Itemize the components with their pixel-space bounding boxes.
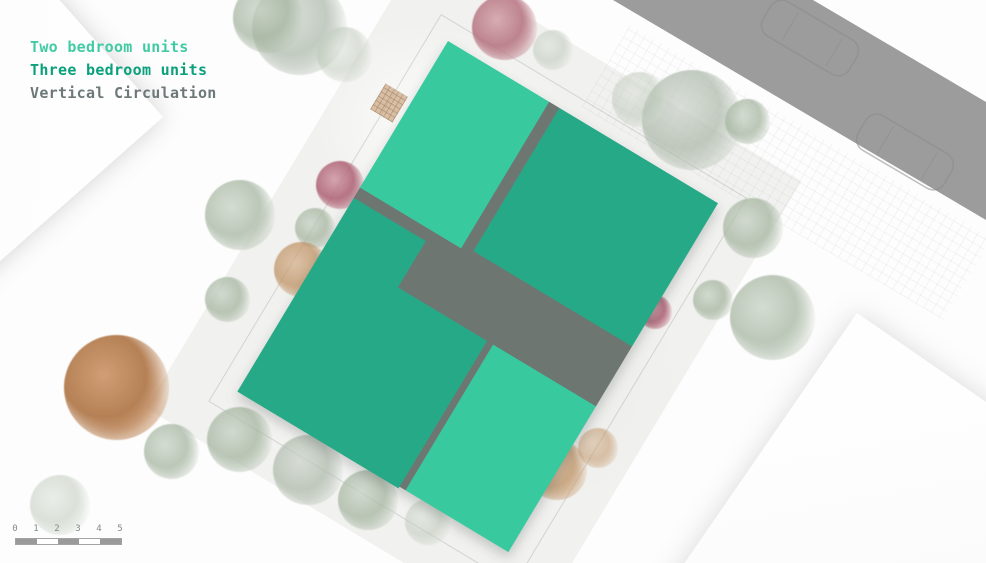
scale-label-3: 3 bbox=[73, 524, 83, 534]
scale-label-4: 4 bbox=[94, 524, 104, 534]
site-plan-canvas: Two bedroom units Three bedroom units Ve… bbox=[0, 0, 986, 563]
scale-bar-segments bbox=[15, 538, 122, 545]
tree bbox=[205, 180, 275, 250]
scale-segment bbox=[100, 539, 121, 544]
legend-item-two-bedroom: Two bedroom units bbox=[30, 36, 217, 59]
tree bbox=[207, 407, 272, 472]
tree bbox=[725, 99, 770, 144]
tree bbox=[723, 198, 783, 258]
scale-segment bbox=[79, 539, 100, 544]
legend: Two bedroom units Three bedroom units Ve… bbox=[30, 36, 217, 105]
tree bbox=[533, 30, 573, 70]
tree bbox=[64, 335, 169, 440]
scale-label-1: 1 bbox=[31, 524, 41, 534]
tree bbox=[693, 280, 733, 320]
tree bbox=[144, 424, 199, 479]
tree bbox=[612, 72, 667, 127]
scale-label-2: 2 bbox=[52, 524, 62, 534]
scale-segment bbox=[16, 539, 37, 544]
scale-bar-labels: 0 1 2 3 4 5 bbox=[15, 524, 131, 536]
scale-bar: 0 1 2 3 4 5 bbox=[15, 524, 131, 545]
scale-segment bbox=[58, 539, 79, 544]
legend-item-three-bedroom: Three bedroom units bbox=[30, 59, 217, 82]
tree bbox=[317, 27, 372, 82]
scale-segment bbox=[37, 539, 58, 544]
tree bbox=[730, 275, 815, 360]
tree bbox=[578, 428, 618, 468]
scale-label-0: 0 bbox=[10, 524, 20, 534]
tree bbox=[205, 277, 250, 322]
legend-item-vertical-circulation: Vertical Circulation bbox=[30, 82, 217, 105]
scale-label-5: 5 bbox=[115, 524, 125, 534]
